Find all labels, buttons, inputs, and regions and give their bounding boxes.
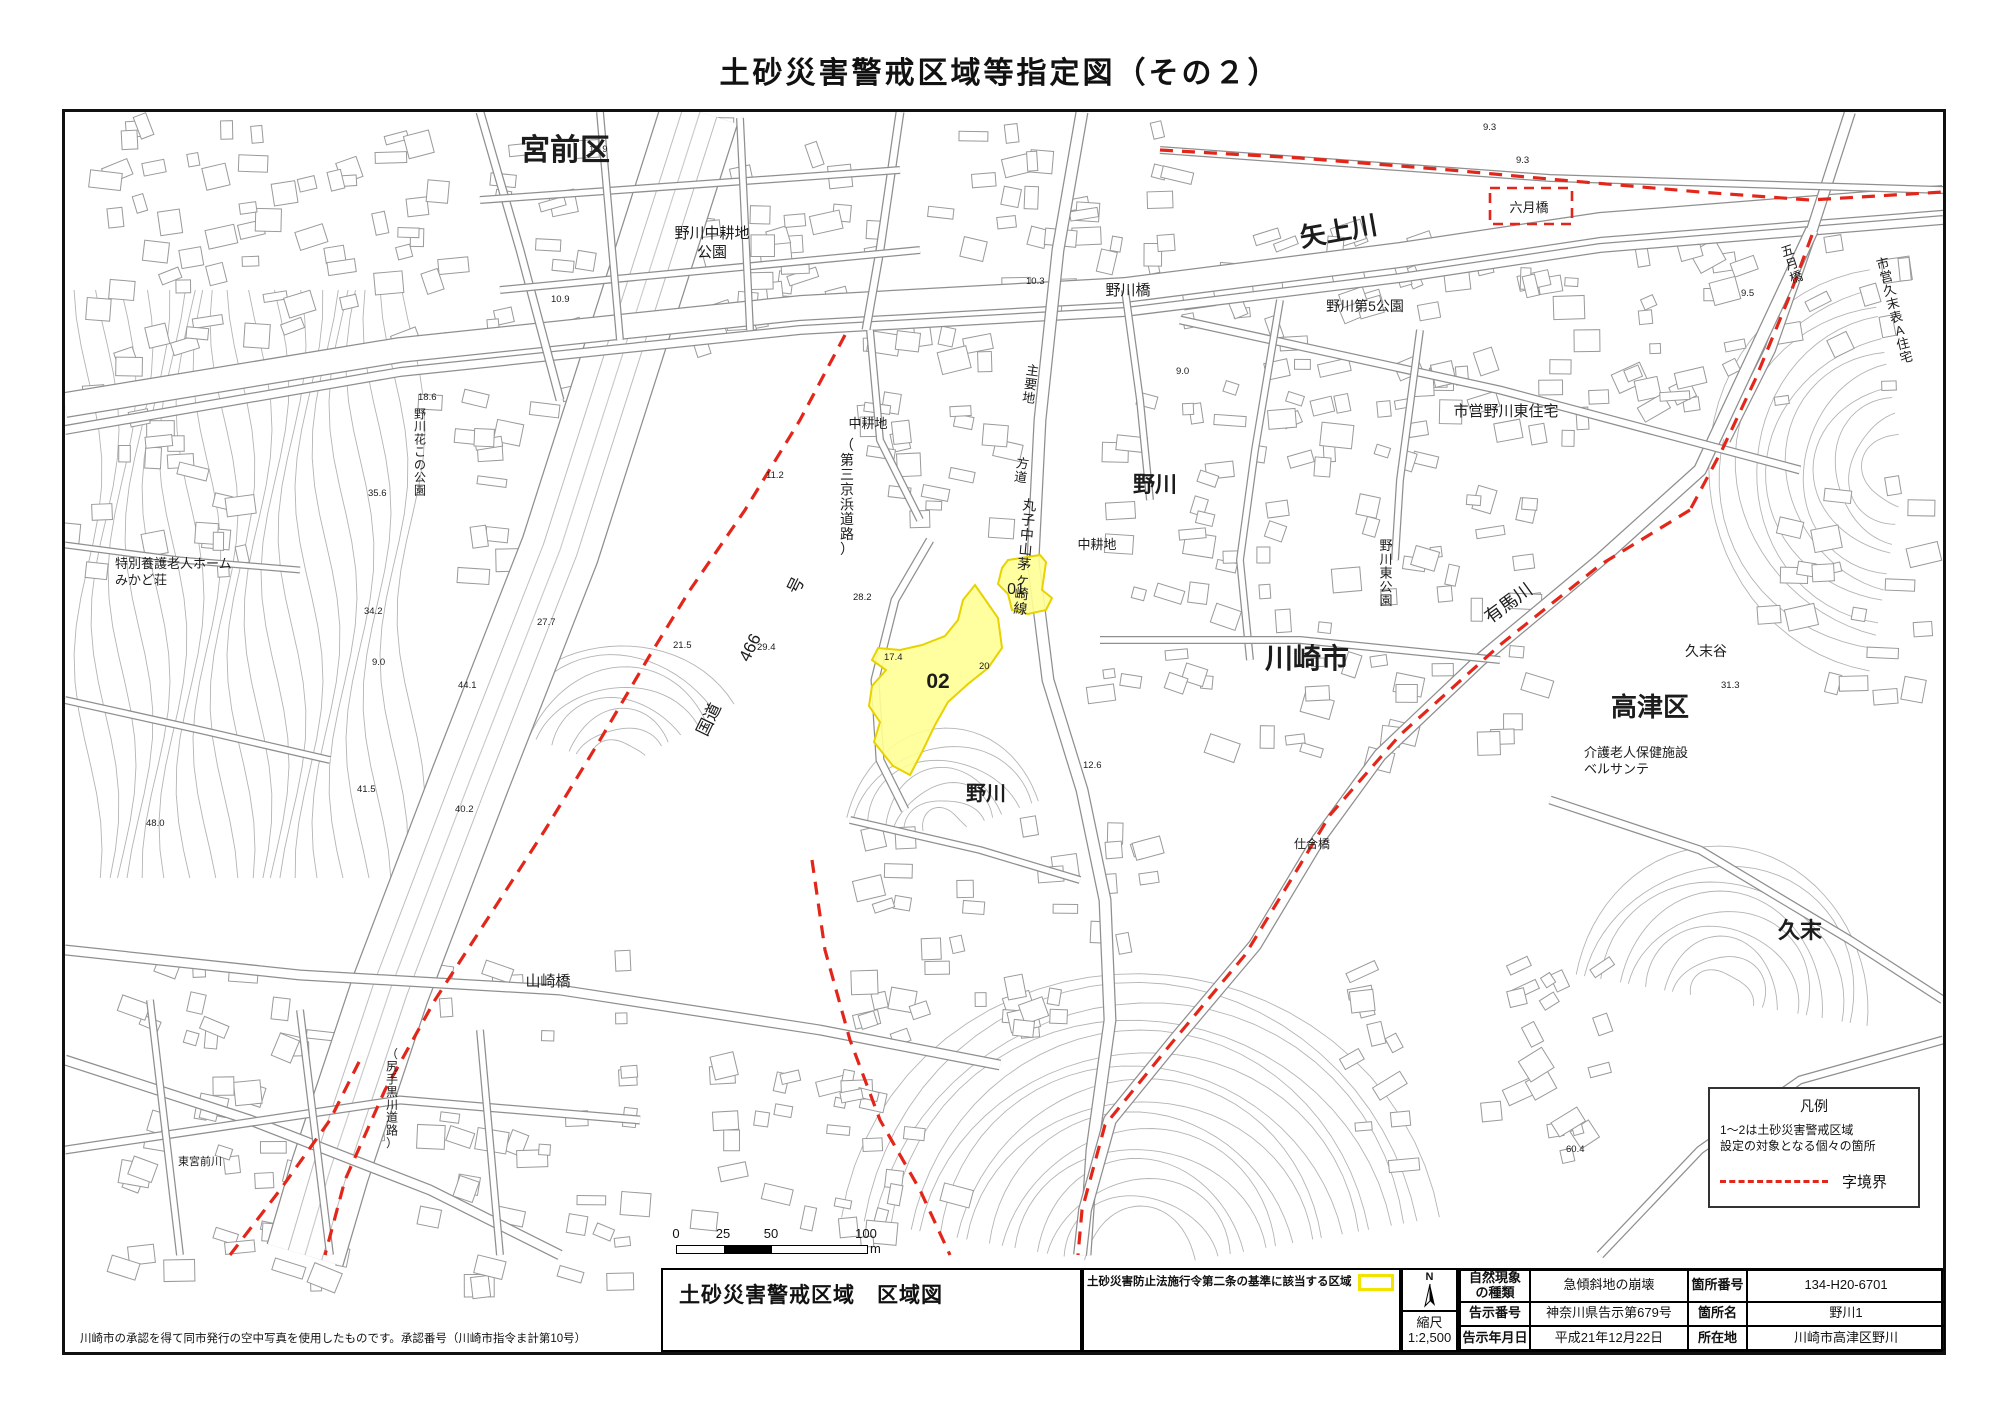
legend-boundary-row: 字境界 — [1720, 1171, 1910, 1192]
legend-note: 1～2は土砂災害警戒区域 設定の対象となる個々の箇所 — [1720, 1122, 1918, 1154]
scale-tick-0: 0 — [672, 1226, 679, 1241]
table-header-notice-date: 告示年月日 — [1460, 1326, 1530, 1350]
map-label: （尻手黒川道路） — [386, 1047, 398, 1150]
map-label: 介護老人保健施設ベルサンテ — [1584, 745, 1688, 776]
warning-zone-swatch — [1358, 1274, 1394, 1291]
approval-note: 川崎市の承認を得て同市発行の空中写真を使用したものです。承認番号（川崎市指令ま計… — [80, 1330, 586, 1346]
map-label: 久末谷 — [1685, 643, 1727, 659]
map-label: 野川 — [1133, 472, 1177, 497]
table-value-notice-number: 神奈川県告示第679号 — [1530, 1302, 1688, 1326]
page-title: 土砂災害警戒区域等指定図（その２） — [0, 48, 2000, 92]
north-label: N — [1403, 1271, 1456, 1283]
scale-ratio-cell: 縮尺 1:2,500 — [1403, 1310, 1456, 1350]
elevation-label: 10.9 — [551, 294, 570, 305]
map-label: 野川東公園 — [1379, 538, 1392, 608]
elevation-label: 28.2 — [853, 592, 872, 603]
map-label: 高津区 — [1611, 692, 1689, 722]
scale-ratio-value: 1:2,500 — [1403, 1331, 1456, 1346]
elevation-label: 17.4 — [884, 652, 903, 663]
legend-box: 凡例 1～2は土砂災害警戒区域 設定の対象となる個々の箇所 字境界 — [1708, 1087, 1920, 1208]
info-table: 自然現象 の種類 急傾斜地の崩壊 箇所番号 134-H20-6701 告示番号 … — [1458, 1268, 1943, 1352]
elevation-label: 35.6 — [368, 488, 387, 499]
map-label: 方道 — [1013, 455, 1030, 485]
map-label: 仕合橋 — [1294, 836, 1330, 851]
map-frame: 宮前区野川中耕地公園矢上川野川橋六月橋五月橋市営久末表A住宅野川第5公園市営野川… — [62, 109, 1946, 1355]
elevation-label: 29.4 — [757, 642, 776, 653]
criteria-box: 土砂災害防止法施行令第二条の基準に該当する区域 — [1082, 1268, 1401, 1352]
map-label: 六月橋 — [1509, 200, 1548, 215]
table-value-site-name: 野川1 — [1747, 1302, 1945, 1326]
elevation-label: 10.9 — [589, 144, 608, 155]
map-label: 久末 — [1778, 918, 1823, 943]
scale-tick-25: 25 — [716, 1226, 730, 1241]
elevation-label: 48.0 — [146, 818, 165, 829]
scale-segment — [772, 1246, 867, 1253]
criteria-label: 土砂災害防止法施行令第二条の基準に該当する区域 — [1087, 1273, 1399, 1289]
map-label: 号 — [784, 574, 809, 598]
scale-segment — [677, 1246, 724, 1253]
table-header-site-name: 箇所名 — [1688, 1302, 1747, 1326]
elevation-label: 20 — [979, 661, 990, 672]
elevation-label: 21.5 — [673, 640, 692, 651]
north-arrow-cell: N — [1403, 1270, 1456, 1310]
elevation-label: 9.0 — [1176, 366, 1189, 377]
elevation-label: 41.5 — [357, 784, 376, 795]
elevation-label: 9.3 — [1516, 155, 1529, 166]
scale-bar: 0 25 50 100 m — [668, 1226, 893, 1262]
elevation-label: 10.3 — [1026, 276, 1045, 287]
elevation-label: 18.6 — [418, 392, 437, 403]
scale-ratio-label: 縮尺 — [1403, 1316, 1456, 1331]
map-label: 中耕地 — [1077, 537, 1116, 552]
map-label: 川崎市 — [1265, 642, 1349, 674]
elevation-label: 12.6 — [1083, 760, 1102, 771]
map-label: 野川 — [966, 783, 1006, 805]
table-value-notice-date: 平成21年12月22日 — [1530, 1326, 1688, 1350]
map-canvas: 宮前区野川中耕地公園矢上川野川橋六月橋五月橋市営久末表A住宅野川第5公園市営野川… — [65, 112, 1943, 1352]
elevation-label: 44.1 — [458, 680, 477, 691]
elevation-label: 34.2 — [364, 606, 383, 617]
scale-segment — [724, 1246, 772, 1253]
elevation-label: 9.3 — [1483, 122, 1496, 133]
elevation-label: 27.7 — [537, 617, 556, 628]
north-compass-box: N 縮尺 1:2,500 — [1401, 1268, 1458, 1352]
map-label: 02 — [926, 670, 949, 693]
elevation-label: 31.3 — [1721, 680, 1740, 691]
elevation-label: 11.2 — [766, 470, 784, 481]
elevation-label: 60.4 — [1566, 1144, 1585, 1155]
map-label: 中耕地 — [848, 416, 887, 431]
table-header-location: 所在地 — [1688, 1326, 1747, 1350]
legend-title: 凡例 — [1710, 1096, 1918, 1116]
map-label: 国道 — [693, 700, 725, 739]
elevation-label: 9.5 — [1741, 288, 1754, 299]
map-label: 市営野川東住宅 — [1453, 403, 1558, 420]
map-label: 東宮前川 — [178, 1154, 222, 1168]
map-label: 特別養護老人ホームみかど荘 — [115, 556, 232, 587]
table-header-notice-number: 告示番号 — [1460, 1302, 1530, 1326]
boundary-dash-icon — [1720, 1180, 1828, 1183]
table-header-phenomenon: 自然現象 の種類 — [1460, 1270, 1530, 1302]
map-label: 野川花この公園 — [414, 407, 426, 497]
map-title-box: 土砂災害警戒区域 区域図 — [661, 1268, 1082, 1352]
scale-tick-100: 100 — [855, 1226, 877, 1241]
elevation-label: 9.0 — [372, 657, 385, 668]
legend-boundary-label: 字境界 — [1842, 1174, 1887, 1191]
map-title-text: 土砂災害警戒区域 区域図 — [679, 1279, 1080, 1309]
map-label: 01 — [1007, 581, 1025, 598]
elevation-label: 40.2 — [455, 804, 474, 815]
scale-unit: m — [870, 1241, 881, 1256]
table-value-site-number: 134-H20-6701 — [1747, 1270, 1945, 1302]
table-value-phenomenon: 急傾斜地の崩壊 — [1530, 1270, 1688, 1302]
table-value-location: 川崎市高津区野川 — [1747, 1326, 1945, 1350]
scale-tick-50: 50 — [764, 1226, 778, 1241]
map-label: （第三京浜道路） — [840, 437, 854, 557]
map-label: 山崎橋 — [525, 973, 570, 990]
scale-bar-graphic — [676, 1245, 868, 1254]
map-label: 野川第5公園 — [1326, 298, 1404, 314]
map-label: 野川橋 — [1105, 282, 1150, 299]
north-arrow-icon — [1422, 1283, 1438, 1309]
table-header-site-number: 箇所番号 — [1688, 1270, 1747, 1302]
